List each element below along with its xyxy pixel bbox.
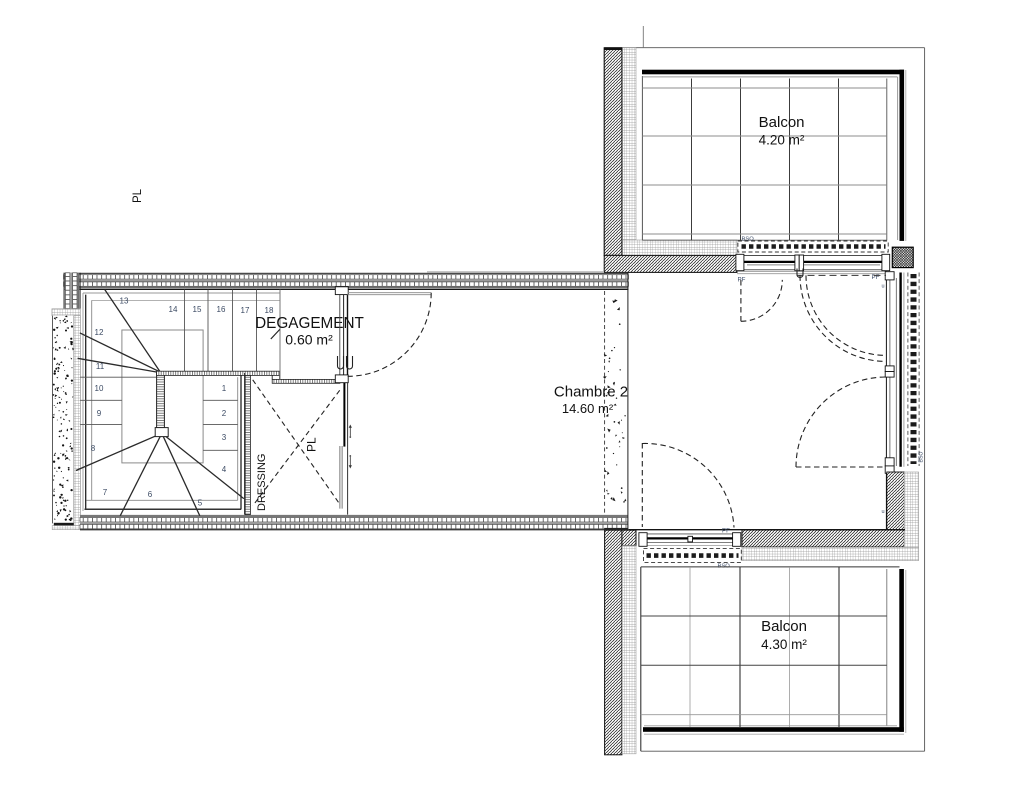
svg-text:8: 8 — [91, 444, 96, 453]
svg-text:11: 11 — [96, 362, 105, 371]
svg-text:14.60 m²: 14.60 m² — [562, 401, 614, 416]
svg-text:PL: PL — [132, 188, 144, 203]
svg-text:4.20 m²: 4.20 m² — [759, 133, 805, 148]
svg-text:u: u — [882, 284, 885, 290]
svg-text:3: 3 — [222, 433, 227, 442]
svg-text:BSO: BSO — [919, 452, 925, 463]
svg-text:0.60 m²: 0.60 m² — [285, 332, 333, 348]
svg-text:1: 1 — [222, 384, 227, 393]
svg-text:6: 6 — [148, 490, 153, 499]
svg-text:9: 9 — [97, 409, 102, 418]
svg-text:Balcon: Balcon — [759, 114, 805, 131]
svg-text:BSO: BSO — [742, 236, 755, 242]
svg-text:4.30 m²: 4.30 m² — [761, 637, 807, 652]
svg-text:10: 10 — [95, 384, 104, 393]
svg-text:16: 16 — [217, 305, 226, 314]
svg-text:18: 18 — [265, 306, 274, 315]
svg-text:17: 17 — [241, 306, 250, 315]
svg-text:PF: PF — [722, 528, 730, 535]
svg-text:4: 4 — [222, 465, 227, 474]
svg-text:DRESSING: DRESSING — [256, 454, 268, 511]
svg-text:PF: PF — [738, 277, 746, 284]
svg-text:PL: PL — [305, 437, 319, 452]
svg-text:15: 15 — [193, 305, 202, 314]
svg-text:2: 2 — [222, 409, 227, 418]
svg-text:5: 5 — [198, 499, 203, 508]
svg-text:12: 12 — [95, 328, 104, 337]
svg-text:13: 13 — [120, 297, 129, 306]
svg-text:14: 14 — [169, 305, 178, 314]
svg-text:u: u — [882, 509, 885, 515]
svg-text:7: 7 — [103, 488, 108, 497]
svg-text:Balcon: Balcon — [761, 618, 807, 635]
